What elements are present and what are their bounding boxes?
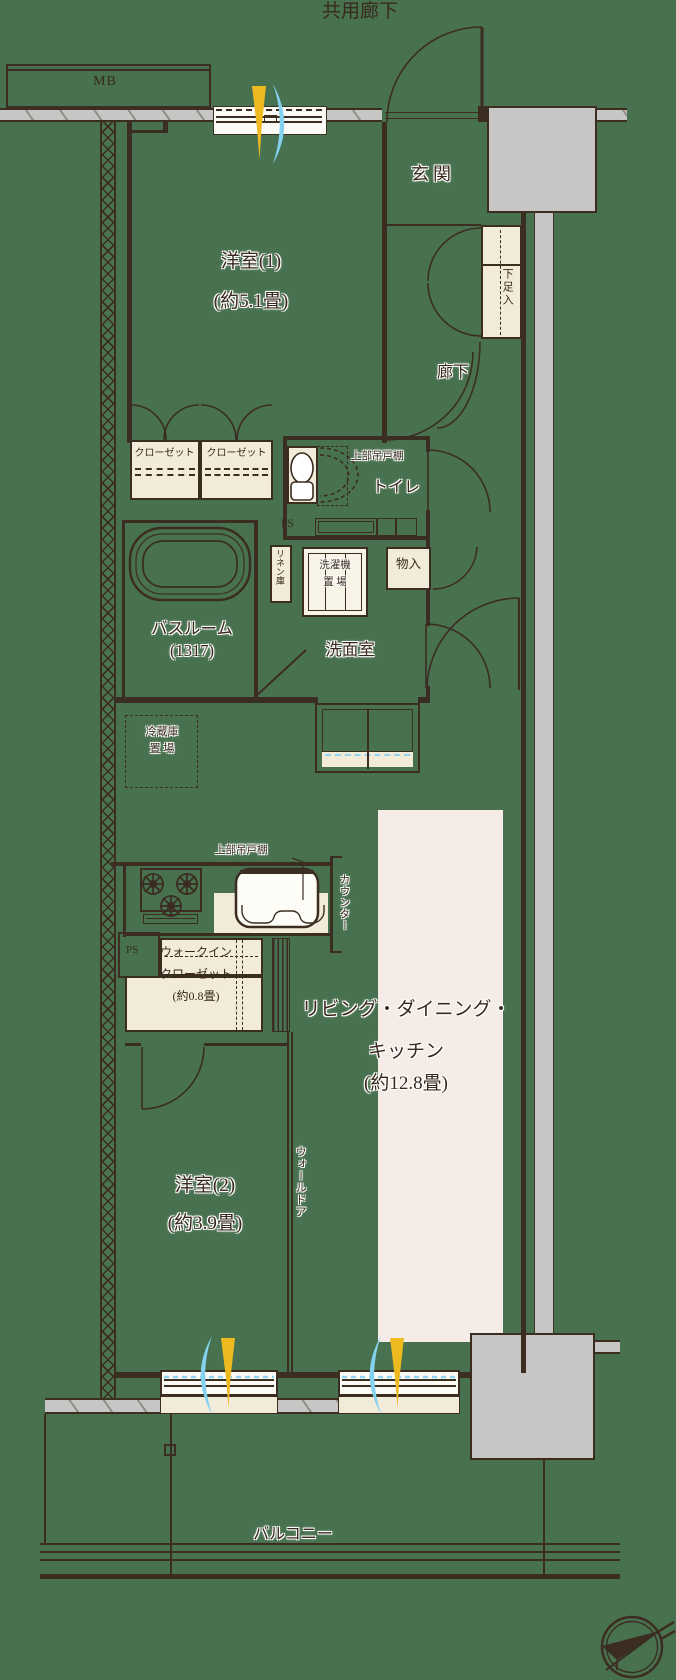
toilet-label: トイレ — [364, 479, 428, 497]
bathroom-size: (1317) — [118, 642, 266, 660]
ldk-label-1: リビング・ダイニング・ — [294, 1000, 518, 1021]
ldk-label-3: (約12.8畳) — [294, 1074, 518, 1095]
closet-right-label: クローゼット — [202, 448, 271, 459]
hallway-label: 廊下 — [425, 364, 481, 382]
shoe-cabinet-label: 下足入 — [501, 268, 513, 338]
linen-label: リネン庫 — [274, 549, 284, 601]
wic-label-3: (約0.8畳) — [136, 990, 256, 1003]
compass-icon — [602, 1617, 675, 1677]
toilet-upper-cabinet-label: 上部吊戸棚 — [351, 451, 404, 463]
wic-label-2: クローゼット — [136, 968, 256, 981]
storage-label: 物入 — [387, 558, 430, 572]
floor-plan: 共用廊下 MB 玄関 下足入 洋室(1) (約5.1畳) 廊下 クローゼット ク… — [0, 0, 676, 1680]
entrance-label: 玄関 — [398, 165, 468, 185]
kitchen-upper-cabinet-label: 上部吊戸棚 — [215, 845, 268, 857]
airflow-icon-bottom-left — [201, 1336, 235, 1414]
washroom-label: 洗面室 — [298, 641, 402, 659]
laundry-label-1: 洗濯機 — [304, 560, 366, 572]
bedroom1-size: (約5.1畳) — [166, 292, 336, 313]
airflow-icon-bottom-right — [370, 1336, 404, 1414]
mb-label: MB — [75, 74, 135, 89]
bedroom2-name: 洋室(2) — [120, 1176, 290, 1197]
ldk-label-2: キッチン — [294, 1042, 518, 1063]
wall-door-label: ウォールドア — [294, 1146, 306, 1250]
airflow-icon-top — [252, 84, 284, 164]
closet-left-label: クローゼット — [131, 448, 198, 459]
bedroom2-size: (約3.9畳) — [120, 1214, 290, 1235]
balcony-label: バルコニー — [235, 1526, 351, 1544]
ps-upper-label: PS — [281, 518, 294, 531]
wic-label-1: ウォークイン — [136, 946, 256, 959]
bathroom-name: バスルーム — [118, 620, 266, 638]
counter-label: カウンター — [338, 874, 350, 956]
bedroom1-name: 洋室(1) — [166, 252, 336, 273]
fridge-label-2: 置 場 — [128, 743, 196, 755]
common-corridor-label: 共用廊下 — [300, 2, 420, 23]
laundry-label-2: 置 場 — [304, 577, 366, 589]
fridge-label-1: 冷蔵庫 — [128, 726, 196, 738]
